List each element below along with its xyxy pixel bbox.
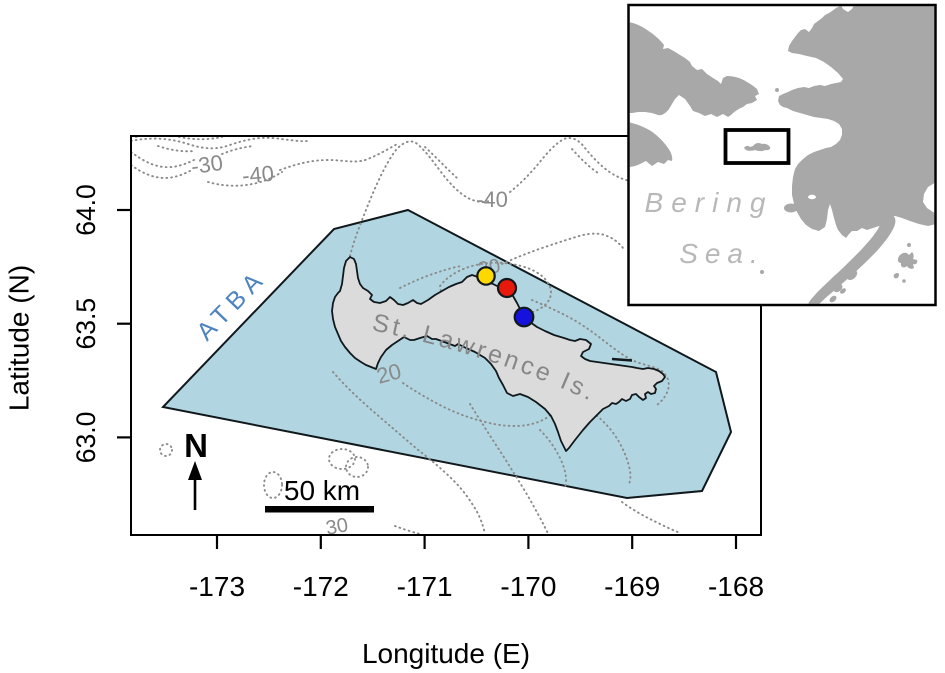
svg-text:-173: -173 bbox=[189, 571, 245, 602]
svg-text:63.5: 63.5 bbox=[71, 298, 101, 350]
svg-text:-170: -170 bbox=[500, 571, 556, 602]
svg-text:-168: -168 bbox=[708, 571, 764, 602]
svg-text:Latitude (N): Latitude (N) bbox=[4, 265, 35, 411]
svg-text:N: N bbox=[184, 427, 208, 464]
svg-text:-169: -169 bbox=[604, 571, 660, 602]
svg-text:64.0: 64.0 bbox=[71, 184, 101, 236]
svg-text:50 km: 50 km bbox=[284, 475, 360, 506]
svg-text:-172: -172 bbox=[293, 571, 349, 602]
svg-text:Longitude (E): Longitude (E) bbox=[362, 638, 530, 669]
svg-text:63.0: 63.0 bbox=[71, 412, 101, 464]
svg-text:-171: -171 bbox=[397, 571, 453, 602]
svg-text:-30: -30 bbox=[189, 150, 224, 179]
svg-text:Bering: Bering bbox=[645, 187, 774, 218]
svg-text:-40: -40 bbox=[241, 161, 275, 189]
svg-text:-40: -40 bbox=[476, 187, 508, 212]
svg-text:Sea.: Sea. bbox=[679, 238, 765, 269]
